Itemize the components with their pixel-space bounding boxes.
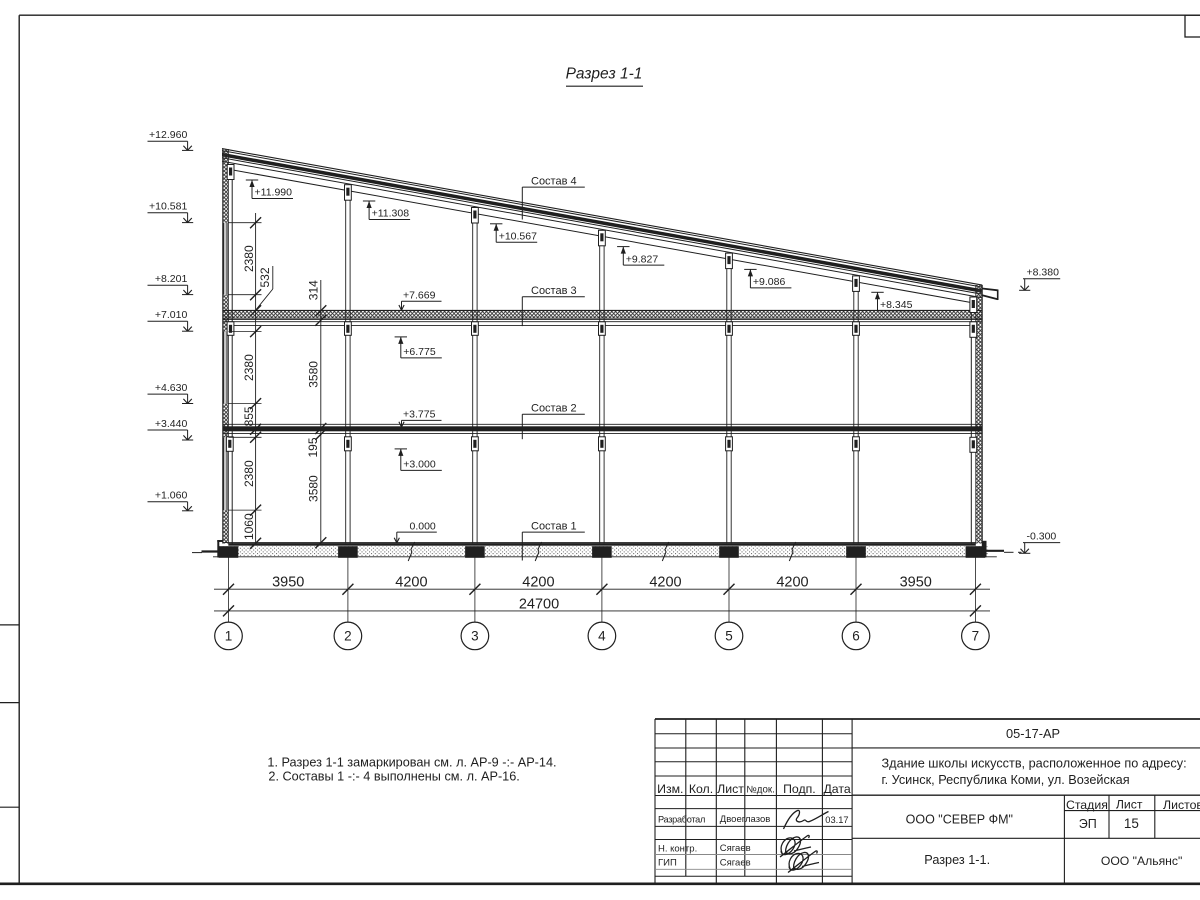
svg-text:+7.010: +7.010 (155, 309, 188, 321)
svg-text:1. Разрез 1-1 замаркирован см.: 1. Разрез 1-1 замаркирован см. л. АР-9 -… (267, 756, 556, 770)
svg-text:532: 532 (258, 267, 272, 287)
svg-text:Изм.: Изм. (657, 782, 683, 796)
svg-text:+3.000: +3.000 (403, 459, 436, 471)
svg-text:+4.630: +4.630 (155, 382, 188, 394)
svg-text:Подп.: Подп. (783, 782, 816, 796)
svg-text:+3.440: +3.440 (155, 418, 188, 430)
svg-text:3950: 3950 (900, 575, 932, 591)
svg-text:195: 195 (306, 437, 320, 457)
svg-text:ЭП: ЭП (1079, 817, 1097, 831)
svg-text:5: 5 (725, 629, 733, 644)
svg-text:1: 1 (225, 629, 233, 644)
svg-text:Состав 1: Состав 1 (531, 520, 577, 532)
svg-text:4200: 4200 (649, 575, 681, 591)
svg-text:3950: 3950 (272, 575, 304, 591)
svg-text:3: 3 (471, 629, 479, 644)
svg-text:+9.086: +9.086 (753, 276, 786, 288)
svg-text:4200: 4200 (395, 575, 427, 591)
svg-text:ООО "Альянс": ООО "Альянс" (1101, 854, 1183, 868)
svg-text:6: 6 (852, 629, 860, 644)
svg-text:+11.990: +11.990 (255, 187, 293, 199)
svg-text:+11.308: +11.308 (372, 208, 410, 220)
svg-text:+10.581: +10.581 (149, 201, 187, 213)
svg-text:Лист: Лист (1116, 798, 1143, 812)
svg-text:Лист: Лист (717, 782, 744, 796)
svg-text:Листов: Листов (1163, 798, 1200, 812)
svg-text:2380: 2380 (242, 354, 256, 381)
svg-text:3580: 3580 (307, 475, 321, 502)
svg-text:Разрез 1-1: Разрез 1-1 (566, 66, 643, 83)
svg-text:03.17: 03.17 (825, 815, 848, 825)
svg-text:2. Составы 1 -:- 4 выполнены с: 2. Составы 1 -:- 4 выполнены см. л. АР-1… (268, 770, 519, 784)
svg-text:+8.345: +8.345 (880, 299, 913, 311)
svg-text:Состав 3: Состав 3 (531, 285, 577, 297)
svg-text:05-17-АР: 05-17-АР (1006, 726, 1060, 741)
svg-text:+8.380: +8.380 (1027, 267, 1060, 279)
svg-text:4200: 4200 (522, 575, 554, 591)
svg-text:Н. контр.: Н. контр. (658, 843, 697, 854)
svg-text:7: 7 (972, 629, 980, 644)
svg-text:+12.960: +12.960 (149, 129, 187, 141)
svg-text:+6.775: +6.775 (403, 346, 436, 358)
svg-text:+10.567: +10.567 (499, 231, 537, 243)
svg-text:Сягаев: Сягаев (720, 857, 751, 868)
svg-text:2380: 2380 (242, 460, 256, 487)
svg-text:Кол.: Кол. (689, 782, 713, 796)
svg-text:314: 314 (307, 280, 321, 300)
svg-text:ООО "СЕВЕР ФМ": ООО "СЕВЕР ФМ" (906, 812, 1013, 826)
svg-text:+8.201: +8.201 (155, 273, 188, 285)
svg-text:Здание школы искусств, располо: Здание школы искусств, расположенное по … (882, 756, 1187, 770)
svg-text:+9.827: +9.827 (626, 253, 659, 265)
svg-text:ГИП: ГИП (658, 858, 677, 869)
svg-text:г. Усинск, Республика Коми, ул: г. Усинск, Республика Коми, ул. Возейска… (882, 773, 1130, 787)
svg-text:Разработал: Разработал (658, 814, 705, 824)
svg-text:0.000: 0.000 (410, 520, 436, 532)
svg-text:Состав 4: Состав 4 (531, 175, 577, 187)
svg-text:15: 15 (1124, 816, 1139, 831)
svg-text:-0.300: -0.300 (1027, 530, 1057, 542)
svg-text:Разрез 1-1.: Разрез 1-1. (924, 853, 990, 867)
svg-text:Стадия: Стадия (1066, 798, 1108, 812)
svg-text:Дата: Дата (823, 782, 850, 796)
svg-text:+3.775: +3.775 (403, 409, 436, 421)
svg-text:24700: 24700 (519, 596, 559, 612)
svg-text:2380: 2380 (242, 245, 256, 272)
svg-text:Двоеглазов: Двоеглазов (720, 814, 771, 825)
svg-text:4: 4 (598, 629, 606, 644)
svg-text:855: 855 (242, 406, 256, 426)
svg-text:+7.669: +7.669 (403, 289, 436, 301)
svg-text:№док.: №док. (746, 785, 774, 796)
svg-text:Сягаев: Сягаев (720, 843, 751, 854)
svg-text:+1.060: +1.060 (155, 490, 188, 502)
svg-text:2: 2 (344, 629, 352, 644)
svg-text:3580: 3580 (307, 361, 321, 388)
svg-text:Состав 2: Состав 2 (531, 402, 577, 414)
svg-text:1060: 1060 (242, 513, 256, 540)
svg-text:4200: 4200 (776, 575, 808, 591)
